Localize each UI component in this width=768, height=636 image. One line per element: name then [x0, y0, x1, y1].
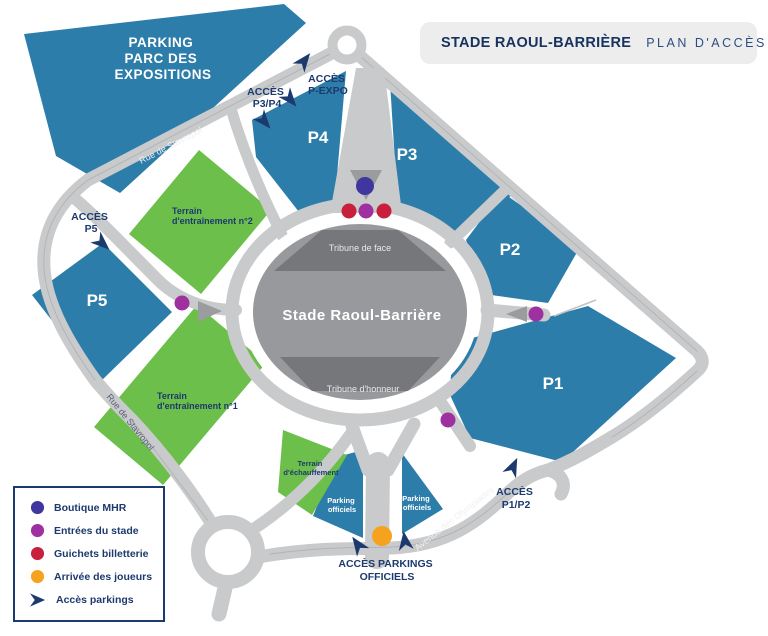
page-title-plan: PLAN D'ACCÈS: [646, 36, 767, 50]
legend-label: Accès parkings: [56, 594, 134, 606]
parking-officiels-left-label: Parking officiels: [327, 496, 357, 514]
p2-label: P2: [500, 240, 521, 259]
access-p3p4-label: ACCÈS P3/P4: [247, 85, 287, 110]
stadium-entrance-marker: [359, 204, 374, 219]
access-arrow: [502, 455, 524, 479]
entrance-dot-icon: [30, 523, 45, 538]
legend-item-arrivee: Arrivée des joueurs: [30, 569, 159, 584]
north-roundabout: [333, 31, 362, 60]
p3-label: P3: [397, 145, 418, 164]
legend-label: Boutique MHR: [54, 502, 126, 514]
players-arrival-marker: [372, 526, 392, 546]
stadium-entrance-marker: [175, 296, 190, 311]
southwest-roundabout: [198, 522, 258, 582]
stadium-entrance-marker: [441, 413, 456, 428]
tribune-honneur-label: Tribune d'honneur: [327, 384, 399, 394]
stadium-entrance-marker: [529, 307, 544, 322]
legend-item-acces: Accès parkings: [30, 592, 159, 608]
legend-item-entrees: Entrées du stade: [30, 523, 159, 538]
access-parkings-officiels-label: ACCÈS PARKINGS OFFICIELS: [338, 557, 435, 583]
legend-label: Arrivée des joueurs: [54, 571, 152, 583]
parking-officiels-right-label: Parking officiels: [402, 494, 432, 512]
ticket-dot-icon: [30, 546, 45, 561]
legend-item-guichets: Guichets billetterie: [30, 546, 159, 561]
p5-label: P5: [87, 291, 108, 310]
access-map-page: Tribune de face Stade Raoul-Barrière Tri…: [0, 0, 768, 636]
players-dot-icon: [30, 569, 45, 584]
legend-label: Guichets billetterie: [54, 548, 149, 560]
stadium-name-label: Stade Raoul-Barrière: [282, 307, 441, 324]
boutique-dot-icon: [30, 500, 45, 515]
page-title-stadium: STADE RAOUL-BARRIÈRE: [441, 35, 631, 51]
p1-label: P1: [543, 374, 564, 393]
road-south-prong-right: [388, 424, 414, 470]
ticket-office-marker: [342, 204, 357, 219]
legend-box: Boutique MHR Entrées du stade Guichets b…: [13, 486, 165, 622]
legend-item-boutique: Boutique MHR: [30, 500, 159, 515]
p4-label: P4: [308, 128, 329, 147]
access-pexpo-label: ACCÈS P-EXPO: [308, 72, 348, 97]
legend-label: Entrées du stade: [54, 525, 139, 537]
parc-expositions-label: PARKING PARC DES EXPOSITIONS: [114, 35, 211, 82]
road-stub-bottom-left: [219, 588, 225, 614]
boutique-mhr-marker: [356, 177, 374, 195]
ticket-office-marker: [377, 204, 392, 219]
road-stub-east: [548, 470, 563, 494]
page-header: STADE RAOUL-BARRIÈRE PLAN D'ACCÈS: [420, 22, 757, 64]
access-arrow-icon: [30, 592, 47, 608]
tribune-face-label: Tribune de face: [329, 243, 391, 253]
